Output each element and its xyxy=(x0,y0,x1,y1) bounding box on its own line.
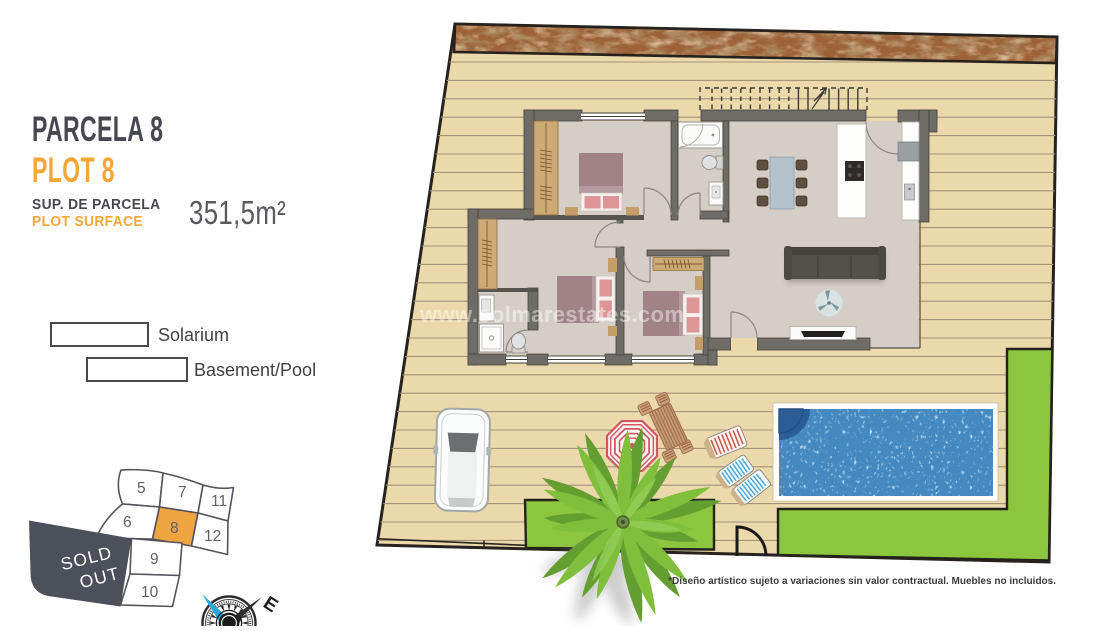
svg-text:11: 11 xyxy=(211,493,227,510)
svg-text:www.solmarestates.com: www.solmarestates.com xyxy=(419,302,684,327)
svg-text:9: 9 xyxy=(150,551,159,568)
svg-text:PLOT 8: PLOT 8 xyxy=(32,151,115,190)
svg-text:12: 12 xyxy=(204,528,221,545)
svg-text:8: 8 xyxy=(170,520,179,537)
svg-text:Solarium: Solarium xyxy=(158,325,229,345)
svg-text:7: 7 xyxy=(178,484,187,501)
svg-text:6: 6 xyxy=(123,514,132,531)
svg-text:PARCELA 8: PARCELA 8 xyxy=(32,110,163,149)
svg-text:PLOT SURFACE: PLOT SURFACE xyxy=(32,214,143,231)
svg-text:Basement/Pool: Basement/Pool xyxy=(194,360,316,380)
svg-text:*Diseño artístico sujeto a var: *Diseño artístico sujeto a variaciones s… xyxy=(668,576,1056,587)
svg-text:5: 5 xyxy=(137,480,146,497)
svg-text:SUP. DE PARCELA: SUP. DE PARCELA xyxy=(32,197,161,214)
svg-text:E: E xyxy=(259,593,281,618)
svg-text:351,5m²: 351,5m² xyxy=(189,195,286,232)
svg-text:10: 10 xyxy=(141,584,159,601)
